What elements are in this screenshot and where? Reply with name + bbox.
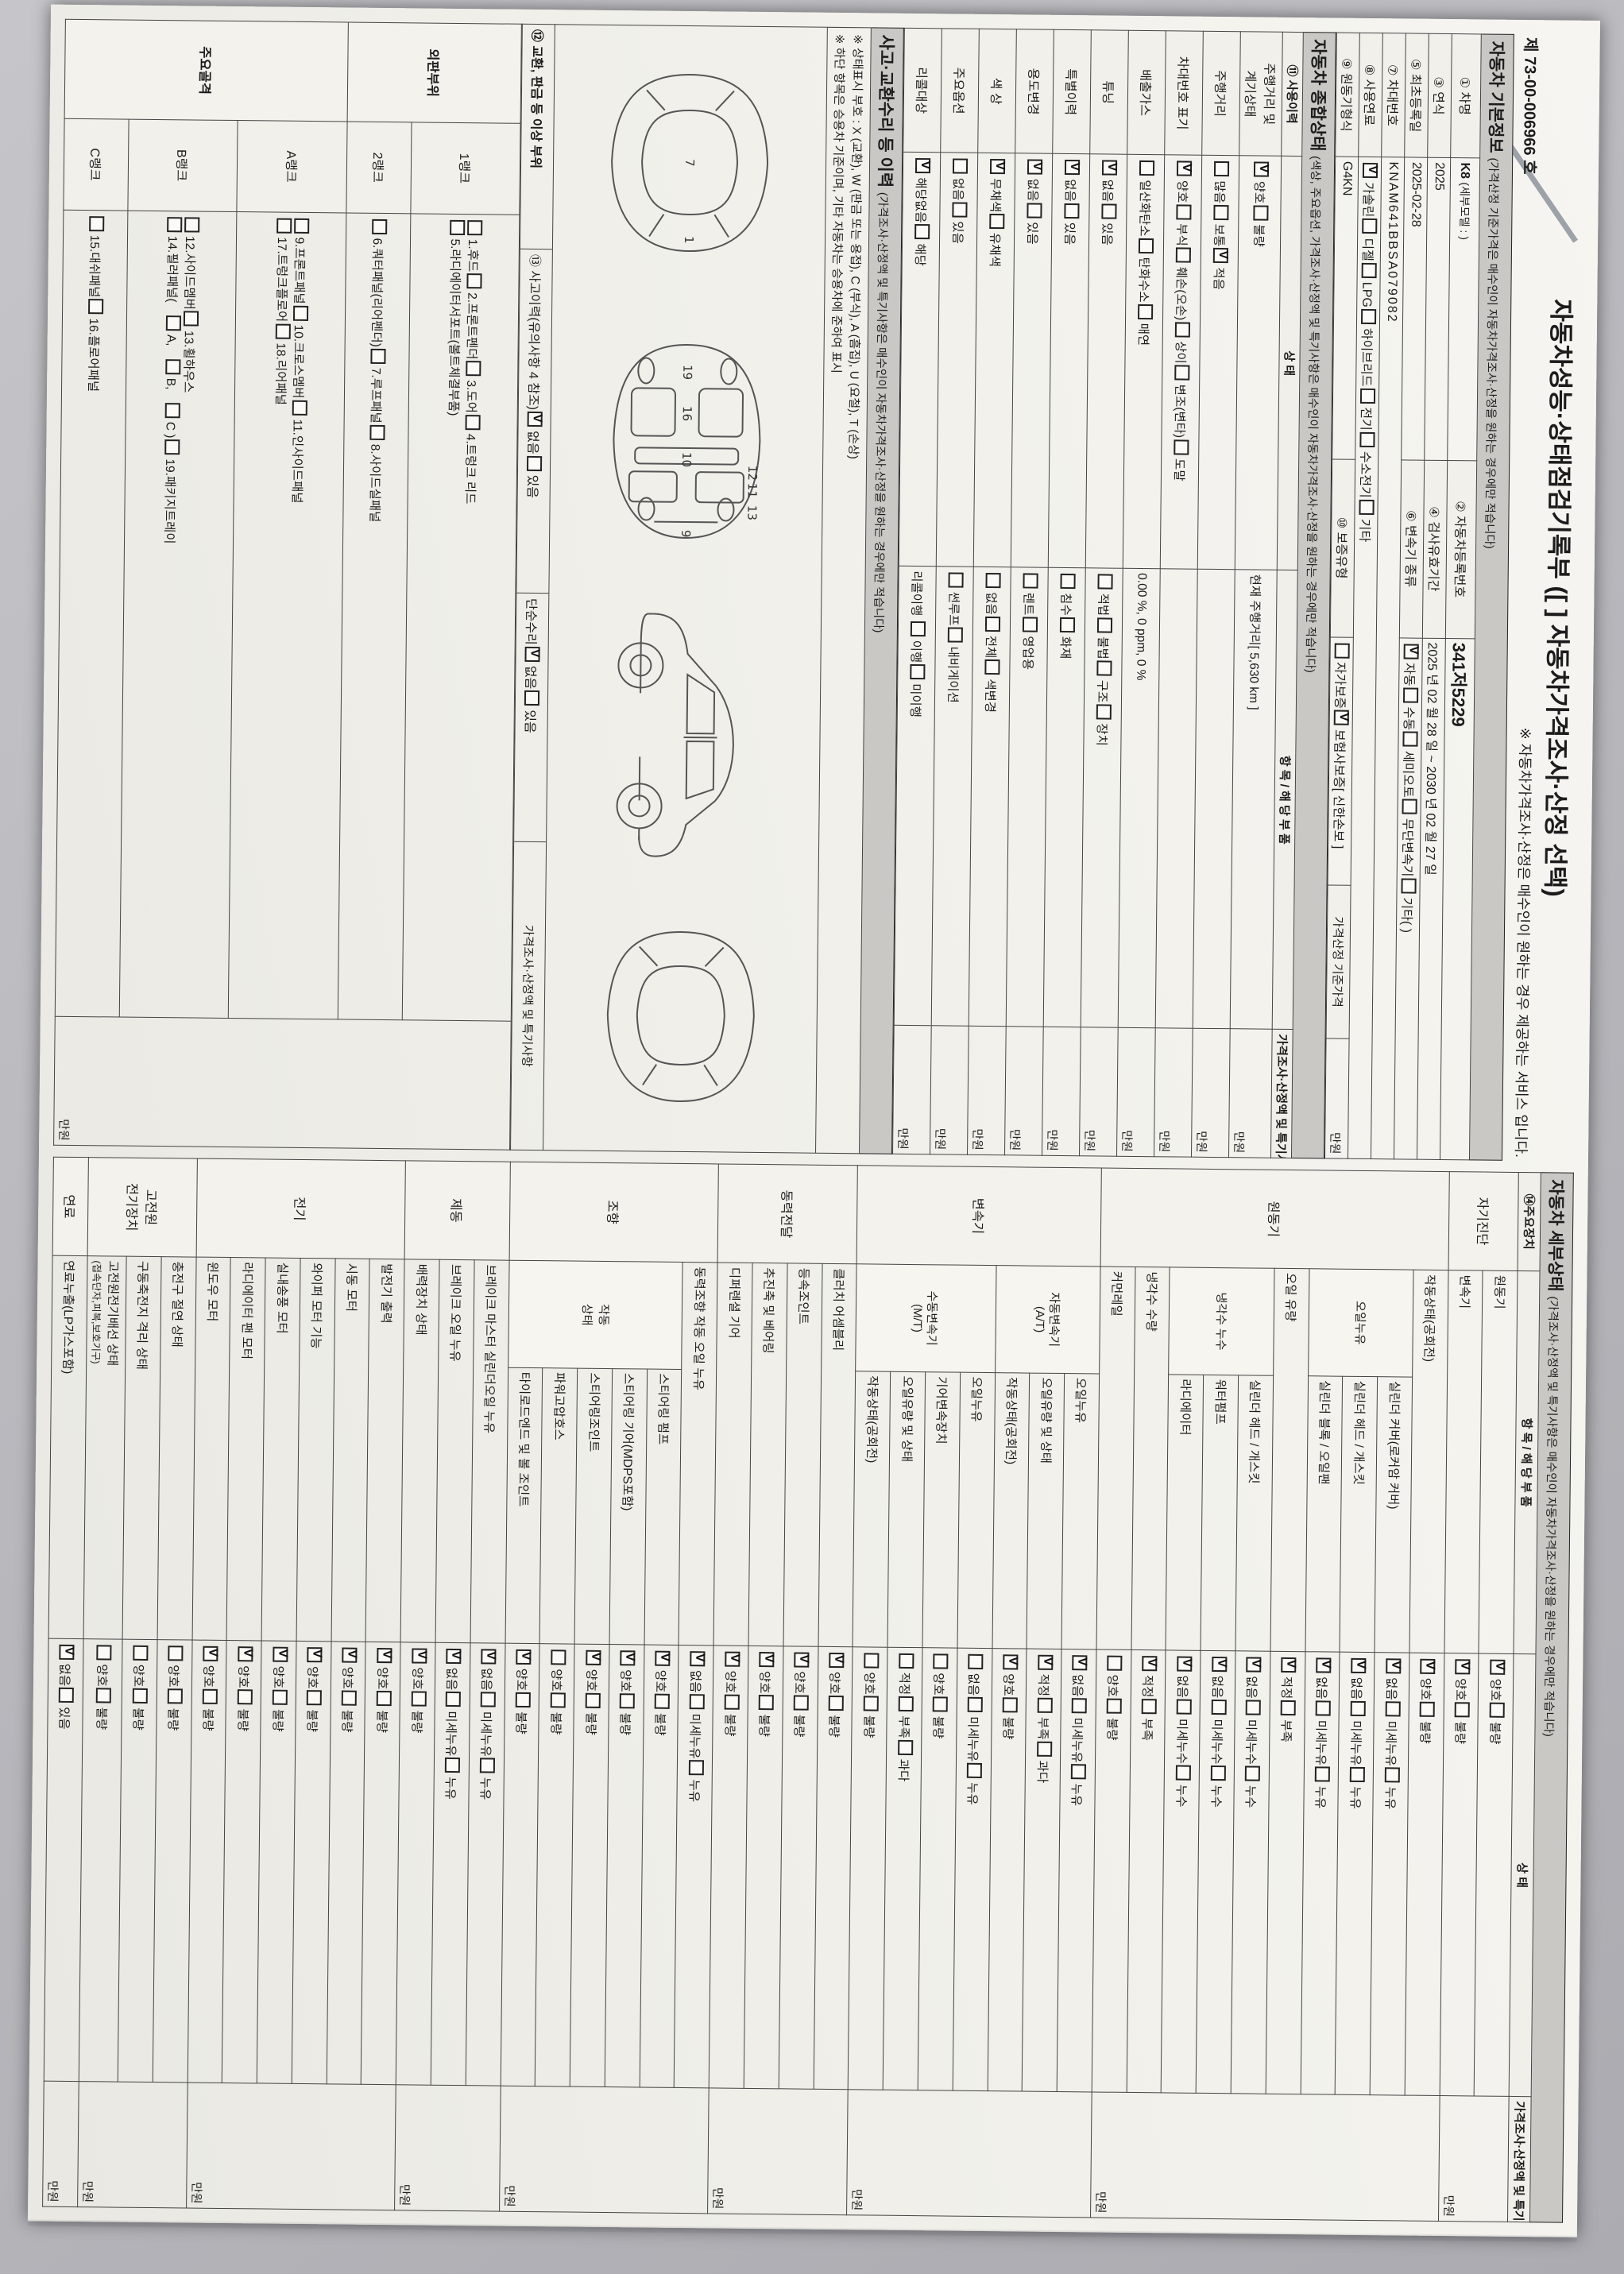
state-options: 양호불량 bbox=[640, 1645, 679, 2088]
option-label: 누유 bbox=[443, 1777, 457, 1800]
label-fuel: ⑧ 사용연료 bbox=[1359, 33, 1383, 157]
checkbox-option: 불량 bbox=[409, 1690, 423, 1734]
option-label: 세미오토 bbox=[1401, 751, 1415, 798]
checkbox-empty bbox=[914, 224, 930, 239]
checkbox-empty bbox=[1097, 617, 1112, 632]
option-label: 있음 bbox=[1100, 222, 1113, 246]
item-sublabel: (접속단자,피복,보호기구) bbox=[87, 1260, 106, 1634]
checkbox-option: 미이행 bbox=[908, 663, 922, 717]
svg-text:12: 12 bbox=[745, 466, 760, 481]
checkbox-option: 자동 bbox=[1402, 642, 1416, 686]
item-subgroup-label: 냉각수 누수 bbox=[1169, 1267, 1274, 1375]
option-label: 탄화수소 bbox=[1136, 257, 1150, 303]
option-label: 부족 bbox=[1139, 1718, 1153, 1741]
state-options: 양호불량 bbox=[1405, 1653, 1444, 2096]
option-label: 미세누유 bbox=[965, 1716, 980, 1762]
checkbox-option: 불량 bbox=[339, 1689, 354, 1733]
item-subgroup-label: 오일누유 bbox=[1308, 1269, 1413, 1377]
option-label: 보통 bbox=[1212, 224, 1225, 247]
checkbox-empty bbox=[585, 1693, 600, 1708]
checkbox-checked bbox=[481, 1649, 496, 1664]
option-label: 썬루프 bbox=[946, 592, 960, 626]
checkbox-option: 변조(변타) bbox=[1172, 364, 1186, 439]
checkbox-empty bbox=[953, 159, 968, 174]
panel-item-label: 13.휠하우스 bbox=[181, 331, 195, 393]
item-label: 와이퍼 모터 기능 bbox=[296, 1259, 335, 1642]
comprehensive-table: ⑪ 사용이력 상 태 항 목 / 해 당 부 품 가격조사·산정액 및 특기사항… bbox=[892, 28, 1304, 1158]
item-note: 0.00 %, 0 ppm, 0 % bbox=[1134, 573, 1148, 680]
panel-item: 3.도어 bbox=[464, 359, 478, 413]
option-label: 양호 bbox=[757, 1671, 771, 1694]
state-options: 없음있음 bbox=[44, 1638, 83, 2082]
checkbox-option: 미세누수 bbox=[1174, 1698, 1189, 1764]
checkbox-empty bbox=[1097, 574, 1112, 590]
rank-item-line: 15.대쉬패널16.플로어패널 bbox=[79, 215, 105, 1013]
option-label: 많음 bbox=[1212, 180, 1226, 203]
option-label: 양호 bbox=[549, 1669, 563, 1692]
panel-item-label: 5.라디에이터서포트(볼트체결부품) bbox=[447, 238, 462, 416]
device-group-label: 원동기 bbox=[1100, 1168, 1449, 1270]
checkbox-empty bbox=[1101, 203, 1116, 219]
rank-items: 15.대쉬패널16.플로어패널 bbox=[55, 210, 128, 1018]
checkbox-checked bbox=[1334, 710, 1349, 725]
item-note: 현재 주행거리[ 5,630 km ] bbox=[1247, 574, 1262, 710]
checkbox-option: 침수 bbox=[1058, 572, 1073, 616]
checkbox-option: 양호 bbox=[131, 1644, 145, 1688]
checkbox-empty bbox=[369, 425, 385, 440]
option-label: 불량 bbox=[131, 1707, 145, 1731]
checkbox-empty bbox=[1096, 661, 1112, 676]
checkbox-option: 누유 bbox=[443, 1756, 458, 1800]
checkbox-option: 불량 bbox=[618, 1692, 632, 1735]
option-label: 없음 bbox=[1100, 180, 1114, 203]
checkbox-empty bbox=[168, 1646, 183, 1661]
state-options: 양호불량 bbox=[779, 1646, 818, 2090]
item-label: 타이로드엔드 및 볼 조인트 bbox=[505, 1367, 543, 1644]
checkbox-checked bbox=[829, 1653, 844, 1668]
checkbox-option: 누수 bbox=[1174, 1764, 1188, 1808]
item-label: 동력조향 작동 오일 누유 bbox=[679, 1263, 718, 1646]
checkbox-empty bbox=[968, 1697, 983, 1712]
device-group-label: 고전원 전기장치 bbox=[87, 1158, 197, 1258]
checkbox-option: 없음 bbox=[951, 157, 965, 201]
state-options: 없음미세누유누유 bbox=[466, 1643, 505, 2086]
checkbox-empty bbox=[985, 617, 1000, 632]
checkbox-checked bbox=[794, 1652, 809, 1667]
usage-label: 주행거리 bbox=[1202, 31, 1241, 156]
option-label: 불량 bbox=[339, 1710, 353, 1733]
rank-label: 1랭크 bbox=[411, 122, 520, 215]
comp-header-usage: ⑪ 사용이력 bbox=[1282, 32, 1304, 157]
item-label: 클러치 어셈블리 bbox=[818, 1263, 857, 1646]
checkbox-option: 많음 bbox=[1212, 160, 1227, 203]
label-inspection-period: ④ 검사유효기간 bbox=[1422, 460, 1447, 638]
label-first-reg-date: ⑤ 최초등록일 bbox=[1405, 33, 1429, 158]
checkbox-empty bbox=[1175, 322, 1190, 337]
state-options: 없음있음 bbox=[1011, 153, 1052, 567]
checkbox-option: 해당 bbox=[913, 222, 927, 266]
checkbox-option: 미세누유 bbox=[1313, 1700, 1328, 1765]
svg-text:10: 10 bbox=[679, 452, 694, 467]
checkbox-checked bbox=[1420, 1659, 1435, 1674]
checkbox-empty bbox=[480, 1758, 495, 1773]
option-label: 양호 bbox=[931, 1673, 945, 1696]
checkbox-empty bbox=[1027, 203, 1042, 218]
checkbox-empty bbox=[1176, 1700, 1191, 1715]
car-diagrams: 1 7 9 10 16 bbox=[543, 24, 827, 1154]
checkbox-option: 불량 bbox=[513, 1691, 528, 1735]
checkbox-checked bbox=[1247, 1657, 1262, 1672]
state-options: 양호불량 bbox=[988, 1648, 1027, 2091]
checkbox-checked bbox=[586, 1650, 601, 1665]
checkbox-checked bbox=[1177, 161, 1192, 176]
checkbox-option: 구조 bbox=[1095, 659, 1109, 703]
usage-label: 배출가스 bbox=[1127, 30, 1166, 155]
checkbox-empty bbox=[167, 217, 182, 232]
checkbox-option: 불량 bbox=[1452, 1700, 1467, 1744]
usage-label: 주행거리 및 계기상태 bbox=[1239, 32, 1283, 157]
price-cell: 만원 bbox=[1005, 1027, 1044, 1155]
checkbox-option: 부족 bbox=[1139, 1697, 1154, 1741]
option-label: 영업용 bbox=[1020, 636, 1034, 670]
option-label: 양호 bbox=[270, 1665, 284, 1688]
option-label: 기타 bbox=[1357, 519, 1371, 543]
option-label: 누수 bbox=[1208, 1785, 1222, 1808]
detail-price-cell: 만원 bbox=[395, 2085, 501, 2211]
checkbox-option: 미세누유 bbox=[1069, 1696, 1084, 1762]
checkbox-option: 있음 bbox=[523, 689, 537, 733]
price-cell: 만원 bbox=[1228, 1029, 1272, 1158]
price-cell: 만원 bbox=[1154, 1028, 1193, 1157]
option-label: 양호 bbox=[410, 1667, 423, 1690]
checkbox-option: 양호 bbox=[827, 1651, 841, 1695]
checkbox-checked bbox=[273, 1646, 288, 1661]
checkbox-option: 불량 bbox=[1418, 1700, 1433, 1744]
checkbox-empty bbox=[952, 202, 967, 217]
option-label: 없음 bbox=[444, 1668, 458, 1691]
device-group-label: 동력전달 bbox=[717, 1164, 857, 1264]
checkbox-empty bbox=[1174, 439, 1189, 454]
checkbox-empty bbox=[307, 1690, 322, 1705]
option-label: 미이행 bbox=[908, 683, 922, 717]
svg-text:9: 9 bbox=[679, 530, 693, 538]
checkbox-empty bbox=[910, 664, 925, 679]
page-detail-state: 자동차 세부상태 (가격조사·산정액 및 특기사항은 매수인이 자동차가격조사·… bbox=[42, 1157, 1574, 2223]
checkbox-option: 양호 bbox=[1453, 1657, 1467, 1701]
checkbox-option: 썬루프 bbox=[946, 571, 961, 626]
option-label: 적정 bbox=[1036, 1673, 1050, 1696]
panel-item: 7.루프패널 bbox=[368, 347, 382, 423]
checkbox-empty bbox=[1349, 1767, 1364, 1782]
option-label: 없음 bbox=[1175, 1675, 1189, 1698]
checkbox-option: 누유 bbox=[1069, 1762, 1084, 1806]
option-label: 없음 bbox=[1209, 1676, 1223, 1699]
checkbox-empty bbox=[272, 1690, 287, 1705]
checkbox-empty bbox=[184, 217, 199, 232]
checkbox-checked bbox=[528, 412, 543, 427]
checkbox-checked bbox=[377, 1648, 392, 1663]
price-cell: 만원 bbox=[968, 1027, 1007, 1155]
option-label: 양호 bbox=[1175, 180, 1189, 203]
option-label: 있음 bbox=[950, 221, 964, 244]
item-part-cell bbox=[1193, 569, 1235, 1029]
item-label: 추진축 및 베어링 bbox=[748, 1263, 787, 1646]
checkbox-empty bbox=[166, 315, 181, 331]
checkbox-empty bbox=[948, 573, 963, 588]
detail-header-state: 상 태 bbox=[1509, 1653, 1536, 2097]
checkbox-checked bbox=[1351, 1658, 1366, 1673]
checkbox-option: 렌트 bbox=[1021, 572, 1035, 616]
checkbox-option: 없음 bbox=[57, 1643, 72, 1687]
option-label: 누유 bbox=[1348, 1786, 1361, 1809]
checkbox-checked bbox=[655, 1650, 670, 1665]
label-engine-type: ⑨ 원동기형식 bbox=[1336, 33, 1360, 157]
checkbox-option: 양호 bbox=[375, 1646, 389, 1690]
option-label: 미세누수 bbox=[1209, 1719, 1224, 1764]
usage-label: 색 상 bbox=[978, 29, 1017, 153]
checkbox-option: 없음 bbox=[1209, 1655, 1224, 1699]
option-label: 부족 bbox=[1035, 1717, 1049, 1740]
checkbox-empty bbox=[1176, 204, 1191, 219]
item-label: 시동 모터 bbox=[331, 1259, 370, 1642]
state-options: 양호불량 bbox=[536, 1643, 575, 2086]
state-options: 없음있음 bbox=[1048, 154, 1089, 568]
checkbox-option: 적법 bbox=[1096, 573, 1110, 617]
state-options: 양호불량 bbox=[79, 1638, 122, 2082]
item-label: 실린더 헤드 / 개스킷 bbox=[1340, 1376, 1377, 1653]
option-label: 자가보증 bbox=[1332, 662, 1347, 709]
option-label: 무채색 bbox=[988, 178, 1001, 212]
item-label: 브레이크 마스터 실린더오일 누유 bbox=[470, 1260, 509, 1643]
checkbox-empty bbox=[342, 1691, 357, 1706]
option-label: 없음 bbox=[688, 1670, 702, 1693]
item-label: 고전원전기배선 상태(접속단자,피복,보호기구) bbox=[83, 1256, 126, 1639]
item-label: 라디에이터 팬 모터 bbox=[226, 1258, 265, 1641]
detail-price-cell: 만원 bbox=[1438, 2096, 1509, 2222]
item-label: 냉각수 수량 bbox=[1131, 1267, 1170, 1650]
rank-price-cell: 만원 bbox=[54, 1017, 512, 1151]
car-top-view-rear bbox=[564, 895, 797, 1135]
item-label: 워터펌프 bbox=[1201, 1375, 1238, 1651]
rank-item-line: 6.쿼터패널(리어펜더)7.루프패널8.사이드실패널 bbox=[362, 217, 388, 1015]
checkbox-empty bbox=[275, 323, 290, 338]
checkbox-checked bbox=[1490, 1659, 1505, 1674]
checkbox-option: 누유 bbox=[1313, 1765, 1327, 1809]
panel-item: 17.트렁크플로어 bbox=[273, 216, 288, 322]
panel-item: 8.사이드실패널 bbox=[367, 423, 381, 523]
checkbox-option: 양호 bbox=[514, 1648, 528, 1692]
option-label: 일산화탄소 bbox=[1137, 180, 1151, 236]
option-label: 있음 bbox=[525, 474, 539, 498]
option-label: 누수 bbox=[1243, 1785, 1257, 1808]
checkbox-empty bbox=[794, 1696, 809, 1711]
rank-row: 주요골격A랭크9.프론트패널10.크로스멤버11.인사이드패널17.트렁크플로어… bbox=[227, 21, 348, 1148]
option-label: 양호 bbox=[583, 1669, 597, 1692]
detail-price-cell: 만원 bbox=[186, 2083, 396, 2210]
option-label: 불량 bbox=[374, 1710, 388, 1733]
state-options: 양호불량 bbox=[849, 1647, 888, 2090]
checkbox-option: 무채색 bbox=[988, 157, 1002, 212]
checkbox-option: 있음 bbox=[1062, 202, 1077, 246]
checkbox-option: 없음 bbox=[1314, 1656, 1328, 1700]
checkbox-option: 없음 bbox=[984, 571, 998, 615]
option-label: 과다 bbox=[1034, 1761, 1048, 1784]
checkbox-option: 기타( ) bbox=[1399, 876, 1413, 933]
panel-item-label: 1.후드 bbox=[466, 239, 479, 273]
option-label: 불량 bbox=[513, 1711, 527, 1735]
checkbox-checked bbox=[307, 1647, 323, 1662]
checkbox-option: 양호 bbox=[305, 1646, 319, 1689]
checkbox-empty bbox=[88, 299, 103, 314]
label-vin: ⑦ 차대번호 bbox=[1382, 33, 1406, 158]
option-label: 양호 bbox=[305, 1666, 319, 1689]
state-options: 없음있음 bbox=[936, 153, 977, 567]
checkbox-option: 있음 bbox=[525, 454, 539, 498]
checkbox-option: 부족 bbox=[1278, 1699, 1293, 1742]
option-label: 없음 bbox=[1063, 179, 1077, 202]
checkbox-empty bbox=[984, 659, 1000, 675]
value-first-reg-date: 2025-02-28 bbox=[1402, 157, 1428, 460]
option-label: 보험사보증 bbox=[1332, 729, 1346, 788]
device-group-label: 전기 bbox=[196, 1158, 406, 1259]
option-label: 불량 bbox=[722, 1714, 736, 1737]
value-engine-type: G4KN bbox=[1332, 157, 1359, 459]
option-label: 미세누유 bbox=[443, 1711, 458, 1756]
checkbox-option: 미세누유 bbox=[478, 1691, 493, 1757]
label-exchange-panel: ⑫ 교환, 판금 등 이상 부위 bbox=[520, 25, 555, 249]
checkbox-option: 불량 bbox=[583, 1692, 597, 1735]
item-label: 기어변속장치 bbox=[922, 1371, 960, 1648]
checkbox-option: 적음 bbox=[1211, 246, 1225, 290]
checkbox-empty bbox=[1245, 1766, 1260, 1781]
option-label: 이행 bbox=[908, 640, 922, 663]
accident-history: ⑬ 사고이력(유의사항 4 참조) 없음있음 bbox=[516, 249, 552, 594]
option-label: 불량 bbox=[826, 1715, 840, 1738]
option-label: 불량 bbox=[1251, 224, 1265, 247]
checkbox-empty bbox=[446, 1692, 461, 1707]
option-label: 부식 bbox=[1174, 223, 1188, 246]
basic-info-table: ① 차명 K8 (세부모델 : ) ② 자동차등록번호 341저5229 ③ 연… bbox=[1324, 33, 1482, 1161]
checkbox-empty bbox=[689, 1760, 704, 1775]
comp-header-price: 가격조사·산정액 및 특기사항 bbox=[1270, 1030, 1293, 1158]
device-group-label: 자기진단 bbox=[1448, 1172, 1519, 1271]
checkbox-checked bbox=[1386, 1658, 1401, 1673]
state-options: 적정부족과다 bbox=[883, 1647, 922, 2090]
checkbox-option: 누수 bbox=[1243, 1765, 1258, 1808]
checkbox-empty bbox=[276, 218, 292, 233]
checkbox-option: 미세누유 bbox=[965, 1696, 980, 1762]
option-label: 불량 bbox=[1487, 1722, 1501, 1745]
item-part-cell: 침수화재 bbox=[1043, 567, 1085, 1027]
state-options: 양호불량 bbox=[1440, 1653, 1479, 2096]
option-label: 누유 bbox=[686, 1779, 700, 1802]
checkbox-checked bbox=[238, 1646, 253, 1661]
checkbox-empty bbox=[1403, 687, 1418, 702]
checkbox-option: 불량 bbox=[652, 1692, 667, 1736]
checkbox-empty bbox=[655, 1694, 670, 1709]
checkbox-option: 양호 bbox=[1252, 160, 1266, 204]
state-options: 적정부족 bbox=[1266, 1651, 1305, 2094]
state-options: 없음미세누유누유 bbox=[953, 1648, 992, 2091]
usage-label: 주요옵션 bbox=[941, 29, 980, 153]
checkbox-empty bbox=[294, 218, 309, 233]
panel-item: 18.리어패널 bbox=[273, 322, 287, 405]
car-bottom-view: 9 10 16 19 11 12 13 bbox=[566, 307, 807, 572]
page-performance: 자동차성능·상태점검기록부 ([ ] 자동차가격조사·산정 선택) 제 73-0… bbox=[53, 19, 1586, 1162]
device-group-label: 제동 bbox=[404, 1161, 510, 1260]
checkbox-option: 하이브리드 bbox=[1359, 307, 1373, 387]
option-label: 없음 bbox=[525, 431, 539, 454]
item-label: 스티어링 펌프 bbox=[644, 1369, 682, 1646]
accident-history-options: 없음있음 bbox=[524, 410, 544, 498]
checkbox-empty bbox=[168, 1689, 183, 1704]
car-top-view: 1 7 bbox=[570, 42, 810, 283]
value-warranty-type: 자가보증보험사보증[ 신한손보 ] bbox=[1328, 637, 1353, 886]
option-label: 불량 bbox=[583, 1712, 597, 1735]
checkbox-option: 불량 bbox=[548, 1692, 563, 1735]
checkbox-option: 도말 bbox=[1172, 438, 1186, 481]
rank-items: 6.쿼터패널(리어펜더)7.루프패널8.사이드실패널 bbox=[338, 213, 411, 1021]
checkbox-option: 불량 bbox=[1251, 203, 1266, 247]
checkbox-empty bbox=[292, 306, 307, 321]
panel-item: 13.휠하우스 bbox=[181, 310, 195, 393]
checkbox-checked bbox=[1455, 1659, 1470, 1674]
checkbox-checked bbox=[1213, 248, 1228, 263]
state-options: 없음있음 bbox=[1085, 154, 1127, 568]
checkbox-empty bbox=[96, 1645, 111, 1660]
device-group-label: 연료 bbox=[52, 1157, 88, 1256]
detail-price-cell: 만원 bbox=[1090, 2092, 1439, 2221]
option-label: 과다 bbox=[895, 1759, 909, 1782]
accident-price-header: 가격조사·산정액 및 특기사항 bbox=[511, 842, 546, 1150]
option-label: 있음 bbox=[1062, 222, 1076, 246]
checkbox-option: 영업용 bbox=[1020, 615, 1034, 670]
option-label: 미세누유 bbox=[1348, 1720, 1363, 1765]
option-label: 양호 bbox=[340, 1666, 354, 1689]
checkbox-checked bbox=[342, 1647, 357, 1662]
item-part-cell: 리콜이행 이행미이행 bbox=[894, 567, 936, 1027]
checkbox-option: 보험사보증 bbox=[1332, 709, 1346, 788]
checkbox-empty bbox=[551, 1649, 566, 1665]
checkbox-option: 양호 bbox=[757, 1650, 771, 1694]
checkbox-checked bbox=[516, 1649, 531, 1665]
option-label: 양호 bbox=[653, 1669, 667, 1692]
state-options: 양호불량 bbox=[153, 1639, 192, 2083]
option-label: 양호 bbox=[862, 1672, 876, 1695]
option-label: 있음 bbox=[523, 710, 536, 733]
checkbox-option: 불법 bbox=[1096, 616, 1110, 659]
checkbox-checked bbox=[1254, 162, 1269, 177]
option-label: 양호 bbox=[514, 1669, 528, 1692]
option-label: 미세누유 bbox=[1382, 1721, 1397, 1766]
checkbox-checked bbox=[1404, 644, 1419, 659]
option-label: 없음 bbox=[1026, 179, 1039, 202]
item-label: 실린더 헤드 / 개스킷 bbox=[1235, 1375, 1273, 1652]
checkbox-option: 수소전기 bbox=[1358, 431, 1372, 498]
option-label: 누유 bbox=[1313, 1786, 1326, 1809]
panel-item: 2.프론트펜더 bbox=[464, 272, 478, 359]
checkbox-option: 불량 bbox=[305, 1688, 319, 1732]
checkbox-empty bbox=[1174, 365, 1189, 381]
option-label: 적정 bbox=[896, 1673, 910, 1696]
checkbox-empty bbox=[1489, 1703, 1504, 1718]
panel-item-label: 16.플로어패널 bbox=[86, 318, 100, 392]
state-options: 양호불량 bbox=[292, 1641, 331, 2084]
option-label: 미세누유 bbox=[687, 1713, 702, 1758]
checkbox-option: 양호 bbox=[1418, 1657, 1433, 1701]
checkbox-empty bbox=[1213, 205, 1228, 220]
option-label: 양호 bbox=[201, 1665, 215, 1688]
